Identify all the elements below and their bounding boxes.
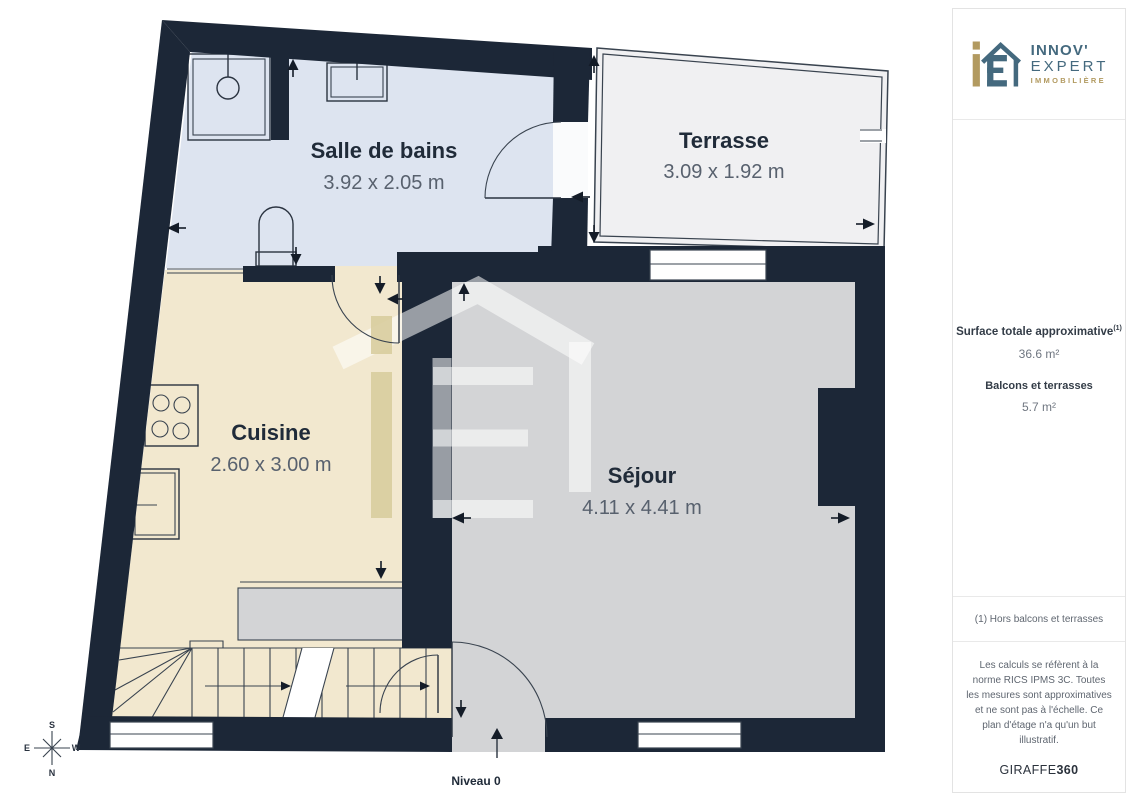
brand-line1: INNOV' bbox=[1031, 43, 1109, 59]
stair-landing bbox=[238, 588, 403, 640]
room-label-salle-de-bains: Salle de bains bbox=[311, 138, 458, 163]
wall-bath-terrace-lower bbox=[551, 198, 588, 258]
footnote-marker: (1) bbox=[1113, 325, 1122, 332]
legal-section: Les calculs se réfèrent à la norme RICS … bbox=[953, 641, 1125, 792]
balcony-value: 5.7 m² bbox=[953, 400, 1125, 414]
kitchen-door-gap bbox=[335, 266, 397, 282]
footnote: (1) Hors balcons et terrasses bbox=[953, 596, 1125, 641]
surface-total-value: 36.6 m² bbox=[953, 347, 1125, 361]
compass: S N E W bbox=[24, 720, 81, 778]
credit-brand: GIRAFFE bbox=[999, 763, 1056, 777]
wall-bath-terrace-upper bbox=[553, 46, 590, 122]
compass-south: S bbox=[49, 720, 55, 730]
brand-line2: EXPERT bbox=[1031, 59, 1109, 75]
window-bottom-left bbox=[110, 722, 213, 748]
surface-block: Surface totale approximative(1) 36.6 m² … bbox=[953, 325, 1125, 414]
floor-plan: S N E W Salle de bains 3.92 x 2.05 m Ter… bbox=[0, 0, 950, 800]
window-living-bottom bbox=[638, 722, 741, 748]
window-living-terrace bbox=[650, 250, 766, 280]
bath-terrace-door-gap bbox=[553, 122, 588, 198]
room-dims-cuisine: 2.60 x 3.00 m bbox=[210, 454, 331, 476]
compass-north: N bbox=[49, 768, 56, 778]
room-label-sejour: Séjour bbox=[608, 463, 677, 488]
floor-plan-svg: S N E W Salle de bains 3.92 x 2.05 m Ter… bbox=[0, 0, 950, 800]
room-dims-salle-de-bains: 3.92 x 2.05 m bbox=[323, 172, 444, 194]
legal-text: Les calculs se réfèrent à la norme RICS … bbox=[966, 658, 1112, 748]
credit-suffix: 360 bbox=[1056, 763, 1078, 777]
room-label-terrasse: Terrasse bbox=[679, 128, 769, 153]
watermark-i-dot bbox=[371, 316, 392, 354]
surface-total-label: Surface totale approximative(1) bbox=[953, 325, 1125, 338]
compass-star bbox=[34, 731, 70, 765]
agency-logo-icon bbox=[970, 36, 1024, 92]
watermark-i-stem bbox=[371, 372, 392, 518]
wall-shower-stub bbox=[271, 50, 289, 140]
wall-bath-kitchen bbox=[243, 266, 335, 282]
giraffe360-credit: GIRAFFE360 bbox=[966, 761, 1112, 780]
agency-name: INNOV' EXPERT IMMOBILIÈRE bbox=[1031, 43, 1109, 85]
info-sidebar: INNOV' EXPERT IMMOBILIÈRE Surface totale… bbox=[952, 8, 1126, 793]
room-label-cuisine: Cuisine bbox=[231, 420, 310, 445]
compass-west: W bbox=[72, 743, 81, 753]
brand-line3: IMMOBILIÈRE bbox=[1031, 77, 1109, 85]
room-dims-sejour: 4.11 x 4.41 m bbox=[582, 497, 702, 519]
floor-plan-page: S N E W Salle de bains 3.92 x 2.05 m Ter… bbox=[0, 0, 1131, 800]
level-label: Niveau 0 bbox=[451, 774, 501, 788]
agency-logo: INNOV' EXPERT IMMOBILIÈRE bbox=[953, 9, 1125, 120]
surface-section: Surface totale approximative(1) 36.6 m² … bbox=[953, 120, 1125, 596]
room-dims-terrasse: 3.09 x 1.92 m bbox=[663, 161, 784, 183]
balcony-label: Balcons et terrasses bbox=[953, 380, 1125, 392]
compass-east: E bbox=[24, 743, 30, 753]
